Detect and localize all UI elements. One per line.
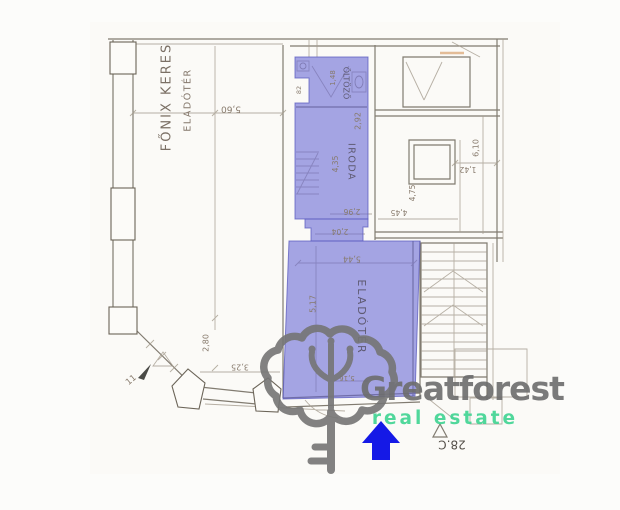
- room-label-oltozo: ÖLTÖZŐ: [342, 67, 352, 100]
- dim-204: 2,04: [331, 227, 348, 236]
- floorplan-drawing: FŐNIX KERES ELADÓTÉR 5,60 ÖLTÖZŐ 1,48 82…: [0, 0, 620, 510]
- dim-148: 1,48: [329, 70, 337, 86]
- dim-296: 2,96: [343, 207, 360, 216]
- dim-517: 5,17: [309, 295, 318, 313]
- dim-560: 5,60: [221, 104, 241, 114]
- dim-280: 2,80: [202, 334, 211, 352]
- floorplan-screenshot: FŐNIX KERES ELADÓTÉR 5,60 ÖLTÖZŐ 1,48 82…: [0, 0, 620, 510]
- dim-445: 4,45: [390, 208, 407, 217]
- dim-142: 1,42: [459, 165, 476, 174]
- dim-475: 4,75: [408, 184, 417, 201]
- dim-82: 82: [295, 86, 303, 94]
- dim-435: 4,35: [331, 155, 340, 172]
- dim-610: 6,10: [472, 139, 481, 157]
- dim-325: 3,25: [231, 363, 249, 372]
- street-label-fonix: FŐNIX KERES: [159, 43, 175, 152]
- dim-292: 2,92: [354, 112, 363, 130]
- dim-544: 5,44: [343, 255, 361, 264]
- room-label-iroda: IRODA: [346, 143, 357, 181]
- street-label-eladoter: ELADÓTÉR: [182, 68, 194, 131]
- watermark-tagline-text: real estate: [372, 408, 518, 429]
- watermark-brand-text: Greatforest: [360, 369, 565, 408]
- unit-number-label: 28.C: [438, 438, 465, 452]
